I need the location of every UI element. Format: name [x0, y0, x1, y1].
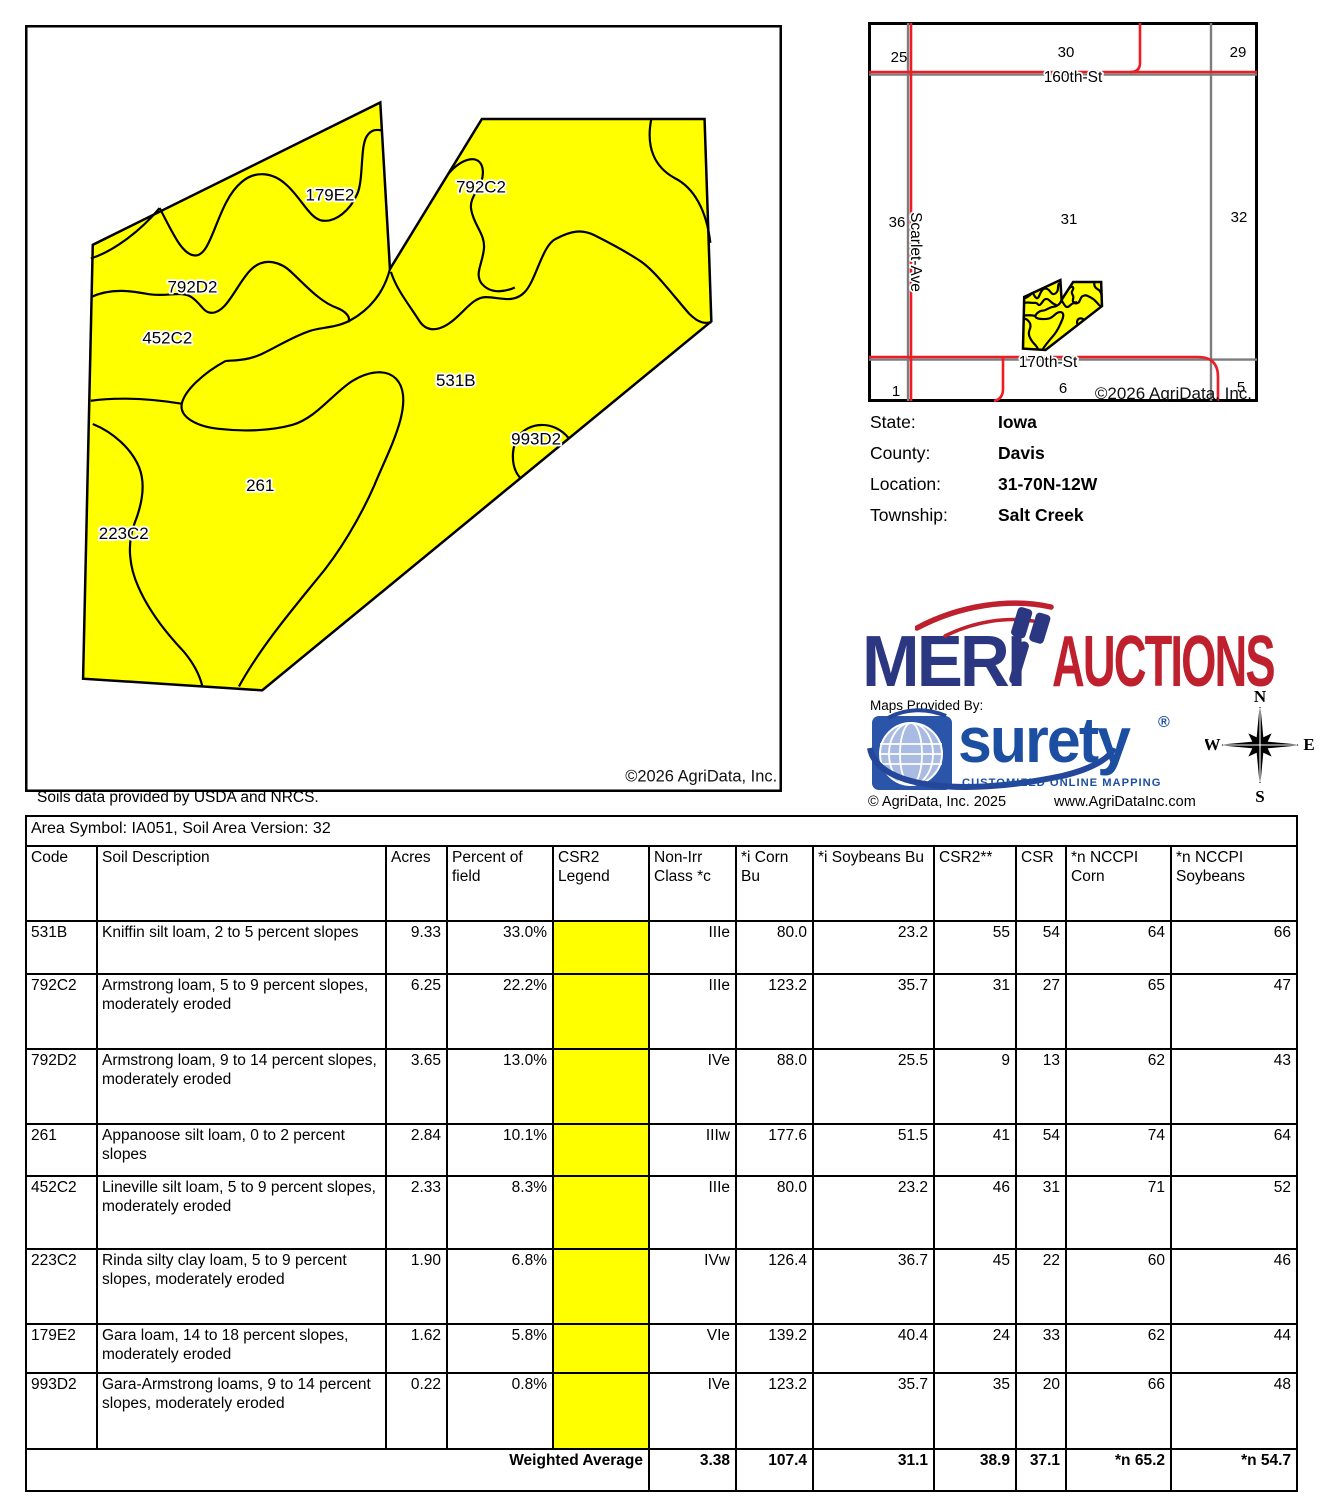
soils-data-note: Soils data provided by USDA and NRCS. [37, 789, 319, 807]
cell-nccpi-corn: 71 [1066, 1176, 1171, 1249]
cell-acres: 3.65 [386, 1049, 447, 1124]
section-number-31: 31 [1061, 211, 1078, 228]
info-row-township: Township: Salt Creek [870, 505, 1097, 536]
location-info: State: Iowa County: Davis Location: 31-7… [870, 412, 1097, 536]
cell-csr2-legend [553, 1124, 649, 1176]
cell-csr2-legend [553, 1373, 649, 1449]
cell-csr2-legend [553, 1176, 649, 1249]
compass-e: E [1303, 735, 1314, 754]
cell-csr2-legend [553, 1249, 649, 1324]
soil-map: 179E2792C2792D2452C2531B993D2261223C2 ©2… [25, 25, 782, 792]
cell-non-irr-class: IVw [649, 1249, 736, 1324]
column-header-3: Percent of field [447, 846, 553, 921]
road-label-160th-st: 160th-St [1044, 69, 1103, 86]
cell-description: Armstrong loam, 9 to 14 percent slopes, … [97, 1049, 386, 1124]
cell-acres: 6.25 [386, 974, 447, 1049]
wa-non-irr-class: 3.38 [649, 1449, 736, 1491]
soil-map-copyright: ©2026 AgriData, Inc. [625, 767, 777, 785]
cell-corn-bu: 126.4 [736, 1249, 813, 1324]
soil-row-261: 261Appanoose silt loam, 0 to 2 percent s… [26, 1124, 1297, 1176]
soil-label-179E2: 179E2 [305, 185, 354, 204]
cell-csr2: 35 [934, 1373, 1016, 1449]
cell-non-irr-class: IVe [649, 1373, 736, 1449]
soil-label-792D2: 792D2 [168, 277, 218, 296]
cell-csr2: 24 [934, 1324, 1016, 1373]
column-header-2: Acres [386, 846, 447, 921]
column-header-1: Soil Description [97, 846, 386, 921]
column-header-11: *n NCCPI Soybeans [1171, 846, 1297, 921]
soil-row-993D2: 993D2Gara-Armstrong loams, 9 to 14 perce… [26, 1373, 1297, 1449]
cell-description: Gara-Armstrong loams, 9 to 14 percent sl… [97, 1373, 386, 1449]
cell-csr2: 45 [934, 1249, 1016, 1324]
county-value: Davis [998, 443, 1045, 474]
section-number-29: 29 [1230, 44, 1247, 61]
agridata-copyright: © AgriData, Inc. 2025 [868, 794, 1006, 810]
cell-corn-bu: 80.0 [736, 921, 813, 974]
cell-non-irr-class: IIIe [649, 974, 736, 1049]
cell-csr2-legend [553, 1049, 649, 1124]
cell-non-irr-class: IVe [649, 1049, 736, 1124]
column-header-10: *n NCCPI Corn [1066, 846, 1171, 921]
cell-soybeans-bu: 23.2 [813, 921, 934, 974]
cell-description: Armstrong loam, 5 to 9 percent slopes, m… [97, 974, 386, 1049]
soil-label-261: 261 [246, 476, 274, 495]
cell-acres: 1.62 [386, 1324, 447, 1373]
cell-code: 179E2 [26, 1324, 97, 1373]
section-number-36: 36 [889, 214, 906, 231]
info-row-county: County: Davis [870, 443, 1097, 474]
registered-mark: ® [1158, 714, 1170, 732]
column-header-5: Non-Irr Class *c [649, 846, 736, 921]
weighted-average-row: Weighted Average3.38107.431.138.937.1*n … [26, 1449, 1297, 1491]
cell-percent: 33.0% [447, 921, 553, 974]
compass-w: W [1205, 735, 1221, 754]
cell-non-irr-class: IIIe [649, 1176, 736, 1249]
location-map-copyright: ©2026 AgriData, Inc. [1095, 384, 1252, 402]
location-label: Location: [870, 474, 998, 505]
cell-csr2: 9 [934, 1049, 1016, 1124]
column-header-9: CSR [1016, 846, 1066, 921]
township-label: Township: [870, 505, 998, 536]
wa-nccpi-soybeans: *n 54.7 [1171, 1449, 1297, 1491]
soil-label-531B: 531B [436, 371, 476, 390]
cell-acres: 0.22 [386, 1373, 447, 1449]
cell-nccpi-corn: 66 [1066, 1373, 1171, 1449]
cell-description: Lineville silt loam, 5 to 9 percent slop… [97, 1176, 386, 1249]
cell-csr: 33 [1016, 1324, 1066, 1373]
soil-row-531B: 531BKniffin silt loam, 2 to 5 percent sl… [26, 921, 1297, 974]
cell-csr2-legend [553, 1324, 649, 1373]
wa-csr2: 38.9 [934, 1449, 1016, 1491]
cell-soybeans-bu: 35.7 [813, 1373, 934, 1449]
cell-nccpi-soybeans: 48 [1171, 1373, 1297, 1449]
cell-nccpi-corn: 64 [1066, 921, 1171, 974]
cell-code: 261 [26, 1124, 97, 1176]
column-header-8: CSR2** [934, 846, 1016, 921]
cell-soybeans-bu: 36.7 [813, 1249, 934, 1324]
cell-percent: 22.2% [447, 974, 553, 1049]
cell-description: Gara loam, 14 to 18 percent slopes, mode… [97, 1324, 386, 1373]
soils-table: Area Symbol: IA051, Soil Area Version: 3… [25, 815, 1298, 1492]
cell-code: 223C2 [26, 1249, 97, 1324]
cell-acres: 1.90 [386, 1249, 447, 1324]
cell-soybeans-bu: 35.7 [813, 974, 934, 1049]
weighted-average-label: Weighted Average [26, 1449, 649, 1491]
cell-csr: 22 [1016, 1249, 1066, 1324]
page: 179E2792C2792D2452C2531B993D2261223C2 ©2… [0, 0, 1321, 1500]
cell-nccpi-corn: 74 [1066, 1124, 1171, 1176]
cell-non-irr-class: IIIe [649, 921, 736, 974]
cell-code: 792D2 [26, 1049, 97, 1124]
surety-logo-text: surety [958, 708, 1129, 772]
cell-csr: 31 [1016, 1176, 1066, 1249]
cell-csr: 54 [1016, 921, 1066, 974]
cell-corn-bu: 139.2 [736, 1324, 813, 1373]
cell-csr2-legend [553, 974, 649, 1049]
agridata-website: www.AgriDataInc.com [1054, 794, 1196, 810]
cell-csr2: 31 [934, 974, 1016, 1049]
cell-non-irr-class: VIe [649, 1324, 736, 1373]
cell-nccpi-corn: 60 [1066, 1249, 1171, 1324]
cell-description: Appanoose silt loam, 0 to 2 percent slop… [97, 1124, 386, 1176]
column-header-4: CSR2 Legend [553, 846, 649, 921]
cell-acres: 9.33 [386, 921, 447, 974]
road-label-170th-st: 170th-St [1019, 354, 1078, 371]
compass-n: N [1254, 690, 1267, 706]
cell-corn-bu: 88.0 [736, 1049, 813, 1124]
soil-row-223C2: 223C2Rinda silty clay loam, 5 to 9 perce… [26, 1249, 1297, 1324]
cell-csr: 20 [1016, 1373, 1066, 1449]
cell-nccpi-soybeans: 44 [1171, 1324, 1297, 1373]
cell-percent: 8.3% [447, 1176, 553, 1249]
gavel-icon [915, 596, 1070, 696]
soil-label-792C2: 792C2 [456, 178, 506, 197]
cell-csr2-legend [553, 921, 649, 974]
state-value: Iowa [998, 412, 1037, 443]
cell-nccpi-corn: 65 [1066, 974, 1171, 1049]
cell-corn-bu: 177.6 [736, 1124, 813, 1176]
cell-csr2: 46 [934, 1176, 1016, 1249]
soil-row-179E2: 179E2Gara loam, 14 to 18 percent slopes,… [26, 1324, 1297, 1373]
cell-nccpi-corn: 62 [1066, 1049, 1171, 1124]
section-number-30: 30 [1058, 44, 1075, 61]
cell-soybeans-bu: 23.2 [813, 1176, 934, 1249]
location-map: 160th-StScarlet-Ave170th-St 253029363132… [868, 22, 1258, 402]
cell-csr: 27 [1016, 974, 1066, 1049]
cell-description: Kniffin silt loam, 2 to 5 percent slopes [97, 921, 386, 974]
column-header-6: *i Corn Bu [736, 846, 813, 921]
surety-tagline: CUSTOMIZED ONLINE MAPPING [962, 777, 1161, 789]
cell-nccpi-soybeans: 52 [1171, 1176, 1297, 1249]
cell-corn-bu: 80.0 [736, 1176, 813, 1249]
cell-percent: 10.1% [447, 1124, 553, 1176]
wa-soybeans-bu: 31.1 [813, 1449, 934, 1491]
cell-nccpi-soybeans: 43 [1171, 1049, 1297, 1124]
area-symbol-header: Area Symbol: IA051, Soil Area Version: 3… [26, 816, 1297, 846]
surety-logo: surety ® CUSTOMIZED ONLINE MAPPING [866, 706, 1196, 798]
cell-soybeans-bu: 40.4 [813, 1324, 934, 1373]
county-label: County: [870, 443, 998, 474]
cell-nccpi-soybeans: 47 [1171, 974, 1297, 1049]
road-label-scarlet-ave: Scarlet-Ave [907, 212, 924, 292]
area-symbol-row: Area Symbol: IA051, Soil Area Version: 3… [26, 816, 1297, 846]
compass-rose-icon: N E S W [1205, 690, 1317, 816]
cell-acres: 2.33 [386, 1176, 447, 1249]
wa-csr: 37.1 [1016, 1449, 1066, 1491]
soil-row-792D2: 792D2Armstrong loam, 9 to 14 percent slo… [26, 1049, 1297, 1124]
cell-csr: 13 [1016, 1049, 1066, 1124]
state-label: State: [870, 412, 998, 443]
section-number-32: 32 [1231, 209, 1248, 226]
column-header-0: Code [26, 846, 97, 921]
cell-percent: 13.0% [447, 1049, 553, 1124]
cell-soybeans-bu: 51.5 [813, 1124, 934, 1176]
cell-csr: 54 [1016, 1124, 1066, 1176]
soil-row-792C2: 792C2Armstrong loam, 5 to 9 percent slop… [26, 974, 1297, 1049]
cell-corn-bu: 123.2 [736, 974, 813, 1049]
cell-soybeans-bu: 25.5 [813, 1049, 934, 1124]
location-value: 31-70N-12W [998, 474, 1097, 505]
soil-row-452C2: 452C2Lineville silt loam, 5 to 9 percent… [26, 1176, 1297, 1249]
cell-percent: 0.8% [447, 1373, 553, 1449]
cell-description: Rinda silty clay loam, 5 to 9 percent sl… [97, 1249, 386, 1324]
cell-nccpi-soybeans: 64 [1171, 1124, 1297, 1176]
column-header-row: CodeSoil DescriptionAcresPercent of fiel… [26, 846, 1297, 921]
section-number-25: 25 [891, 49, 908, 66]
cell-percent: 5.8% [447, 1324, 553, 1373]
cell-nccpi-soybeans: 66 [1171, 921, 1297, 974]
cell-percent: 6.8% [447, 1249, 553, 1324]
compass-s: S [1255, 787, 1264, 806]
cell-code: 792C2 [26, 974, 97, 1049]
cell-code: 993D2 [26, 1373, 97, 1449]
cell-acres: 2.84 [386, 1124, 447, 1176]
cell-non-irr-class: IIIw [649, 1124, 736, 1176]
wa-corn-bu: 107.4 [736, 1449, 813, 1491]
soil-label-223C2: 223C2 [99, 524, 149, 543]
section-number-6: 6 [1059, 380, 1067, 397]
soil-label-993D2: 993D2 [511, 429, 561, 448]
info-row-state: State: Iowa [870, 412, 1097, 443]
section-number-1: 1 [892, 383, 900, 400]
cell-code: 531B [26, 921, 97, 974]
cell-csr2: 41 [934, 1124, 1016, 1176]
cell-nccpi-soybeans: 46 [1171, 1249, 1297, 1324]
soil-label-452C2: 452C2 [142, 329, 192, 348]
cell-nccpi-corn: 62 [1066, 1324, 1171, 1373]
auctions-logo-text: AUCTIONS [1052, 632, 1274, 692]
cell-corn-bu: 123.2 [736, 1373, 813, 1449]
merit-auctions-logo: MERI AUCTIONS [860, 596, 1305, 696]
info-row-location: Location: 31-70N-12W [870, 474, 1097, 505]
cell-csr2: 55 [934, 921, 1016, 974]
column-header-7: *i Soybeans Bu [813, 846, 934, 921]
township-value: Salt Creek [998, 505, 1084, 536]
wa-nccpi-corn: *n 65.2 [1066, 1449, 1171, 1491]
cell-code: 452C2 [26, 1176, 97, 1249]
